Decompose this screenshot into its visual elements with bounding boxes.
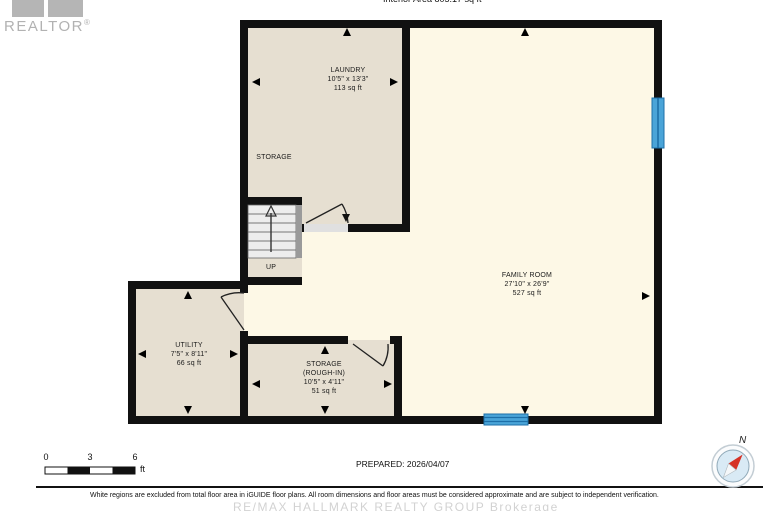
room-area: 113 sq ft [288, 84, 408, 93]
floorplan-page: Interior Area 805.17 sq ft REALTOR® LAUN… [0, 0, 767, 511]
room-dimensions: 7'5" x 8'11" [139, 350, 239, 359]
staircase [248, 205, 302, 258]
room-name: FAMILY ROOM [467, 271, 587, 280]
room-area: 51 sq ft [264, 387, 384, 396]
family-room-right-window [652, 98, 664, 148]
interior-area-label: Interior Area 805.17 sq ft [383, 0, 482, 4]
scale-bar [45, 467, 135, 474]
scale-tick-3: 3 [84, 452, 96, 462]
utility-label: UTILITY 7'5" x 8'11" 66 sq ft [139, 341, 239, 368]
storage-label: STORAGE [234, 153, 314, 162]
scale-tick-6: 6 [129, 452, 141, 462]
realtor-logo-text: REALTOR® [4, 18, 90, 35]
footer-divider [36, 486, 763, 488]
room-area: 527 sq ft [467, 289, 587, 298]
family-room-bottom-window [484, 414, 528, 425]
room-dimensions: 27'10" x 26'9" [467, 280, 587, 289]
realtor-logo-block-right [48, 0, 83, 17]
family-room-label: FAMILY ROOM 27'10" x 26'9" 527 sq ft [467, 271, 587, 298]
disclaimer-text: White regions are excluded from total fl… [90, 492, 650, 499]
room-name: UTILITY [139, 341, 239, 350]
stair-handrail [296, 205, 302, 258]
realtor-logo-block-left [12, 0, 44, 17]
stairs-up-label: UP [251, 263, 291, 272]
room-dimensions: 10'5" x 13'3" [288, 75, 408, 84]
compass-north-label: N [739, 435, 746, 446]
brokerage-watermark: RE/MAX HALLMARK REALTY GROUP Brokerage [233, 500, 559, 511]
room-name: LAUNDRY [288, 66, 408, 75]
prepared-date: PREPARED: 2026/04/07 [356, 459, 449, 469]
storage-rough-in-label: STORAGE (ROUGH-IN) 10'5" x 4'11" 51 sq f… [264, 360, 384, 396]
laundry-door-threshold [304, 224, 348, 232]
room-name: STORAGE [234, 153, 314, 162]
compass-icon [712, 445, 754, 487]
laundry-label: LAUNDRY 10'5" x 13'3" 113 sq ft [288, 66, 408, 93]
room-dimensions: 10'5" x 4'11" [264, 378, 384, 387]
room-qualifier: (ROUGH-IN) [264, 369, 384, 378]
room-area: 66 sq ft [139, 359, 239, 368]
scale-unit-label: ft [140, 464, 145, 474]
room-name: STORAGE [264, 360, 384, 369]
registered-mark: ® [84, 18, 90, 27]
scale-tick-0: 0 [40, 452, 52, 462]
